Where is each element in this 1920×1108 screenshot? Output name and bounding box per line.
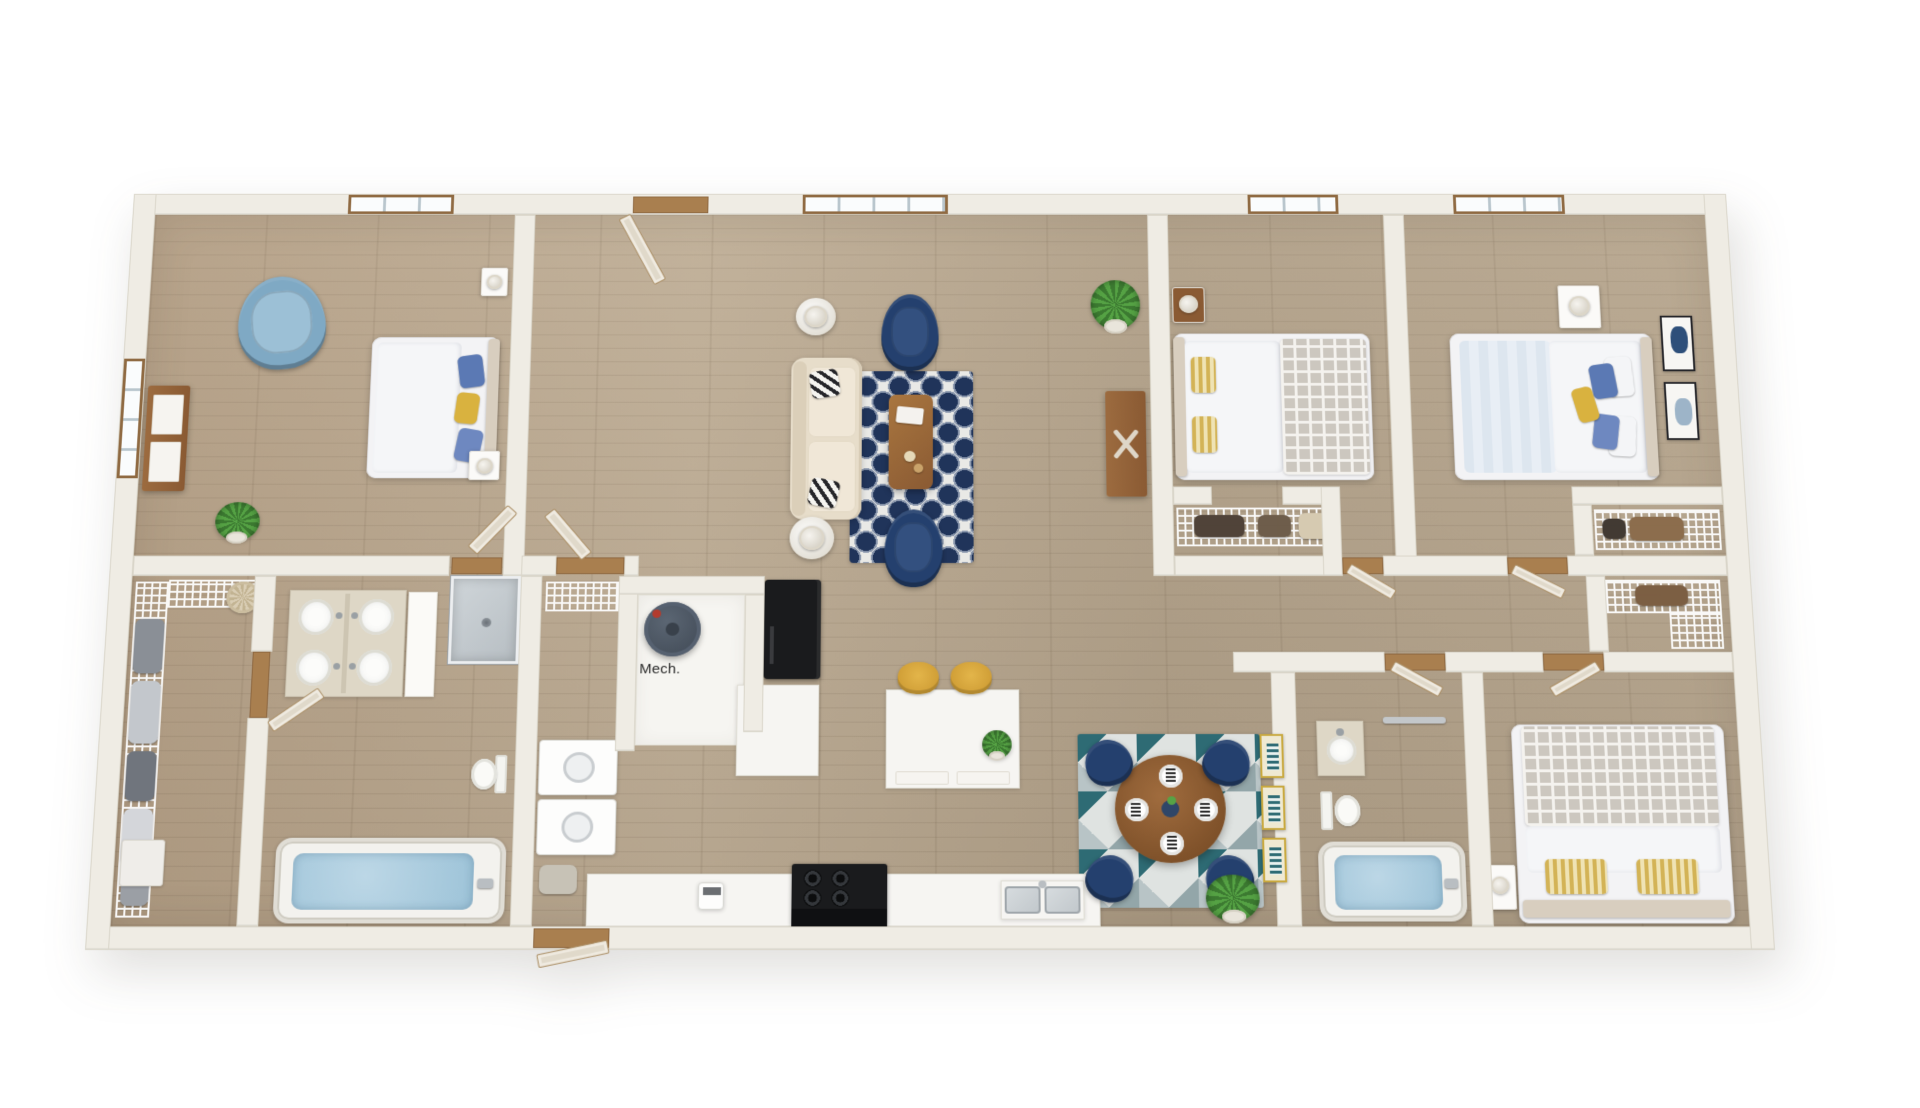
wall [743,595,764,733]
sink [358,599,395,635]
towel-bar [1383,717,1446,724]
sofa-back [792,361,807,516]
side-table [796,298,836,335]
art-frame [1259,734,1284,778]
table-lamp [1179,295,1198,313]
faucet [349,663,356,670]
blanket-geometric [1280,339,1371,475]
throw-pillow [808,368,841,399]
skylight-window [1453,195,1565,214]
art-frame [1262,838,1287,883]
burner [803,889,821,907]
pillow-yellow [453,392,480,425]
heater-cap [666,623,680,636]
throw-pillow [807,477,842,510]
table-lamp [1568,296,1590,316]
sink [356,650,393,686]
hamper [119,840,166,887]
closet-shelf [1669,613,1724,649]
tv-console [1105,391,1147,497]
stored-bag [1258,515,1291,537]
coffee-maker [698,882,724,909]
nightstand [468,451,500,480]
armchair-navy [884,509,942,587]
range [791,864,887,926]
magazine [896,406,925,425]
art-strokes [1269,847,1282,874]
heater-valve [652,610,661,618]
table-lamp [487,275,503,289]
centerpiece-greenery [1167,796,1176,805]
wall [619,576,765,595]
double-vanity [285,590,407,697]
sink [295,650,332,686]
shower [448,576,521,664]
stored-bag [1194,515,1245,537]
wall [251,576,276,652]
wall [133,556,450,576]
bath2-vanity [1316,721,1365,776]
bed-bedroom-2 [1173,334,1374,481]
clothes [132,619,165,673]
refrigerator [764,580,822,679]
burner [831,889,849,907]
sink [298,599,335,635]
coffee-maker-top [703,887,721,895]
basket [539,865,578,894]
stored-bag [1602,519,1626,539]
nightstand [1557,285,1601,328]
cup [904,451,916,462]
headboard [1523,900,1731,918]
wall [1383,556,1508,576]
closet-shelf [545,582,620,612]
floorplan-render-canvas: Mech. [0,0,1920,1108]
door-sill [451,557,502,574]
door-sill [633,197,709,214]
skylight-window [1247,195,1338,214]
table-lamp [1491,877,1510,895]
chair-cushion [891,307,929,357]
range-front [791,909,887,927]
wall-art [1664,382,1700,440]
fridge-handle [770,626,774,664]
island-plant [982,730,1012,759]
armchair-navy [881,294,938,371]
sheet-blue [1459,341,1557,473]
toilet-tank [1320,791,1333,830]
wall [624,556,639,576]
chair-cushion [249,288,314,356]
chair-cushion [894,522,933,572]
pillow-striped [1191,357,1217,393]
potted-plant [1205,875,1260,922]
wall [615,576,639,751]
toilet-bowl [471,759,498,790]
wall [1174,556,1342,576]
pillow-blue [457,354,485,389]
art-abstract [1674,398,1693,425]
napkin [1200,803,1210,817]
clothes [128,681,161,744]
wall [1445,652,1544,673]
wall [1603,652,1733,673]
dryer-door [563,752,595,783]
dresser-door [148,442,181,482]
faucet [333,663,340,670]
skylight-window [348,195,454,214]
faucet [1336,728,1344,736]
toilet-bowl [1334,795,1361,826]
bathtub [272,838,506,924]
closet-shelf [1594,509,1722,550]
art-strokes [1267,744,1280,771]
closet-shelf [1605,580,1722,614]
closet-shelf [1176,508,1338,547]
kitchen-sink [1001,880,1085,919]
nightstand [1172,287,1205,323]
wall [1572,505,1594,556]
door-sill [249,652,270,718]
bar-stool [898,662,939,694]
sink-basin [1005,886,1041,913]
faucet [335,612,342,619]
vanity-divider [341,594,350,694]
table-lamp [799,526,824,550]
plant-pot [1222,910,1246,924]
pillow-striped [1192,416,1218,452]
blanket-geometric [1521,726,1720,826]
bed-bedroom-3 [1449,334,1659,481]
sink-basin [1044,886,1080,913]
tub-faucet [1444,879,1458,889]
plant-pot [1104,319,1127,333]
toilet [1318,786,1365,836]
shower-drain [481,618,491,627]
plant-pot [989,751,1005,761]
wall-art [1660,316,1696,372]
wall [1567,556,1727,576]
burner [831,870,849,888]
sink [1326,736,1356,765]
cup [914,464,924,473]
island-cabinet [895,771,948,784]
clothes [124,751,157,801]
floor-plan: Mech. [85,194,1775,950]
wall [1233,652,1385,673]
tub-faucet [477,879,493,889]
door-sill [556,557,624,574]
bathtub [1318,842,1468,922]
faucet [351,612,358,619]
pillow-striped [1636,859,1700,894]
art-strokes [1268,795,1281,822]
wall [521,556,557,576]
burner [804,870,822,888]
wall [1571,486,1723,504]
art-frame [1261,786,1286,830]
side-table [789,517,834,559]
stored-roll [1635,585,1689,606]
bath-water [1334,855,1443,910]
wall [1173,486,1212,504]
napkin [1167,836,1177,851]
coffee-table [889,395,933,490]
wall [1586,576,1609,652]
island-cabinet [957,771,1010,784]
wall [1321,486,1343,575]
wall-exterior-bottom [85,926,1775,950]
pillow-striped [1545,859,1608,894]
washer-door [561,812,594,843]
art-abstract [1670,326,1689,353]
napkin [1166,768,1176,782]
sink-faucet [1038,880,1046,888]
dryer [538,740,618,796]
bath-water [291,853,474,910]
napkin [1131,803,1141,817]
window [803,195,948,214]
dresser-door [151,395,184,435]
bar-stool [951,662,992,694]
sofa [790,358,862,520]
table-lamp [804,306,827,327]
potted-plant [1090,280,1140,330]
dresser [142,386,191,491]
linen-cabinet [404,592,437,697]
nightstand [481,268,509,296]
mech-room-label: Mech. [639,660,722,681]
stored-roll [1629,517,1685,541]
table-lamp [476,458,493,474]
washer [536,799,617,855]
toilet [468,749,509,799]
bed-bedroom-4 [1511,725,1736,924]
sheet [372,343,462,473]
